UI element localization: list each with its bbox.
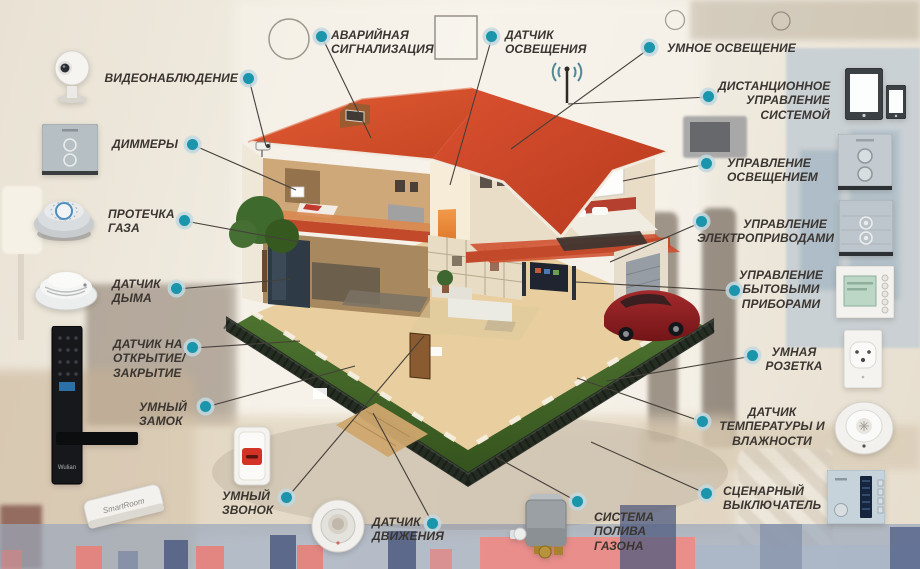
smoke-detector-image [33, 264, 99, 316]
label-smart-lock: УМНЫЙ ЗАМОК [139, 400, 191, 429]
label-appliances-control: УПРАВЛЕНИЕ БЫТОВЫМИ ПРИБОРАМИ [735, 268, 827, 311]
plant-pot [442, 285, 449, 293]
speaker [572, 266, 576, 300]
label-gas-leak: ПРОТЕЧКА ГАЗА [108, 207, 176, 236]
ceiling-ring-outline [666, 11, 685, 30]
callout-dot-emergency-alarm [316, 31, 327, 42]
books [452, 256, 462, 266]
callout-dot-smart-lock [200, 401, 211, 412]
scenario-switch-panel-image [827, 470, 885, 524]
callout-dot-light-sensor [486, 31, 497, 42]
label-video-surveillance: ВИДЕОНАБЛЮДЕНИЕ [100, 71, 238, 85]
label-drives-control: УПРАВЛЕНИЕ ЭЛЕКТРОПРИВОДАМИ [697, 217, 827, 246]
label-light-sensor: ДАТЧИК ОСВЕЩЕНИЯ [505, 28, 601, 57]
callout-dot-video-surveillance [243, 73, 254, 84]
dormer-window [346, 110, 364, 122]
callout-dot-irrigation [572, 496, 583, 507]
ip-camera-image [48, 42, 96, 104]
plant [437, 270, 453, 286]
smart-home-infographic: Wulian SmartRoom [0, 0, 920, 569]
label-emergency-alarm: АВАРИЙНАЯ СИГНАЛИЗАЦИЯ [331, 28, 443, 57]
callout-dot-lighting-control [701, 158, 712, 169]
label-irrigation: СИСТЕМА ПОЛИВА ГАЗОНА [594, 510, 660, 553]
thermostat-image [836, 266, 894, 318]
gas-leak-detector-image [31, 196, 97, 246]
door-wedge-sensor-image: SmartRoom [80, 478, 170, 536]
label-smoke-detector: ДАТЧИК ДЫМА [112, 277, 166, 306]
callout-dot-smart-lighting [644, 42, 655, 53]
callout-dot-temp-humidity [697, 416, 708, 427]
wall-picture [410, 182, 418, 192]
label-scenario-switch: СЦЕНАРНЫЙ ВЫКЛЮЧАТЕЛЬ [723, 484, 829, 513]
pillow [592, 207, 608, 215]
label-smart-doorbell: УМНЫЙ ЗВОНОК [222, 489, 280, 518]
speaker [522, 262, 526, 296]
wall-switch-round-buttons-image [838, 134, 892, 190]
living-tv [530, 262, 568, 292]
temp-humidity-sensor-image [833, 400, 895, 456]
tv-thumbnail [535, 268, 541, 273]
wall-tag [291, 187, 304, 197]
label-remote-control: ДИСТАНЦИОННОЕ УПРАВЛЕНИЕ СИСТЕМОЙ [718, 79, 830, 122]
coffee-table [484, 320, 516, 332]
ceiling-ring-outline [269, 19, 309, 59]
callout-dot-gas-leak [179, 215, 190, 226]
wall-tag [430, 347, 442, 356]
lock-brand-text: Wulian [58, 465, 76, 471]
antenna-tip [565, 67, 570, 72]
label-temp-humidity: ДАТЧИК ТЕМПЕРАТУРЫ И ВЛАЖНОСТИ [716, 405, 828, 448]
label-smart-socket: УМНАЯ РОЗЕТКА [762, 345, 826, 374]
front-gate-door [410, 333, 430, 379]
motion-sensor-image [310, 498, 366, 554]
wall-picture [395, 180, 405, 192]
wall-tag [313, 388, 327, 399]
callout-dot-remote-control [703, 91, 714, 102]
tablet-image [845, 68, 883, 120]
tv-thumbnail [544, 269, 550, 274]
tv-thumbnail [553, 270, 559, 275]
label-open-close-sensor: ДАТЧИК НА ОТКРЫТИЕ/ ЗАКРЫТИЕ [113, 337, 187, 380]
callout-dot-scenario-switch [701, 488, 712, 499]
doorbell-button-image [233, 426, 271, 486]
label-dimmers: ДИММЕРЫ [112, 137, 180, 151]
callout-dot-open-close-sensor [187, 342, 198, 353]
books [490, 262, 499, 271]
dimmer-panel-image [42, 124, 98, 176]
label-motion-sensor: ДАТЧИК ДВИЖЕНИЯ [372, 515, 440, 544]
callout-dot-smart-socket [747, 350, 758, 361]
wall-switch-ring-buttons-image [839, 200, 893, 256]
callout-dot-dimmers [187, 139, 198, 150]
ceiling-ring-outline [772, 12, 790, 30]
label-lighting-control: УПРАВЛЕНИЕ ОСВЕЩЕНИЕМ [727, 156, 831, 185]
callout-dot-smoke-detector [171, 283, 182, 294]
irrigation-valve-image [508, 490, 580, 562]
wall-socket-image [844, 330, 882, 388]
callout-dot-smart-doorbell [281, 492, 292, 503]
smartphone-image [886, 85, 906, 119]
upper-left-cabinet [285, 168, 320, 205]
label-smart-lighting: УМНОЕ ОСВЕЩЕНИЕ [667, 41, 799, 55]
